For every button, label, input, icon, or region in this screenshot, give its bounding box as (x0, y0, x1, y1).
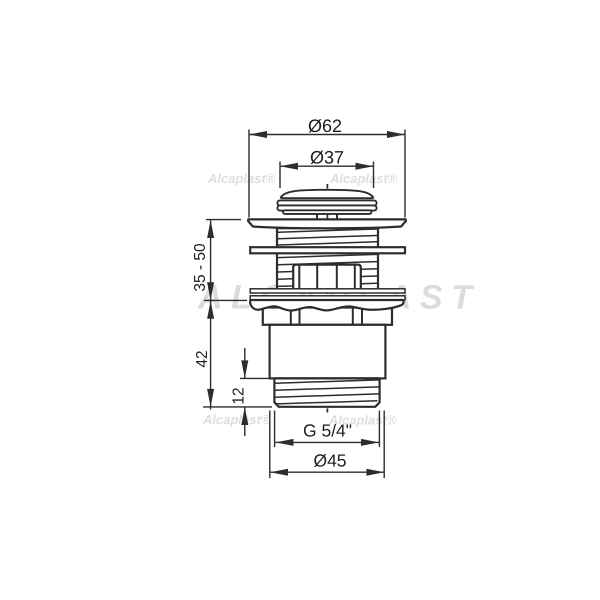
svg-text:42: 42 (194, 350, 211, 367)
svg-text:Alcaplast®: Alcaplast® (202, 412, 271, 427)
svg-text:Alcaplast®: Alcaplast® (207, 171, 276, 186)
svg-text:Ø62: Ø62 (308, 116, 342, 136)
svg-text:35 - 50: 35 - 50 (192, 243, 209, 292)
svg-text:G 5/4": G 5/4" (303, 420, 352, 440)
svg-text:Ø37: Ø37 (310, 147, 344, 167)
svg-text:Ø45: Ø45 (313, 450, 346, 470)
svg-text:12: 12 (231, 387, 248, 404)
svg-text:Alcaplast®: Alcaplast® (329, 171, 398, 186)
